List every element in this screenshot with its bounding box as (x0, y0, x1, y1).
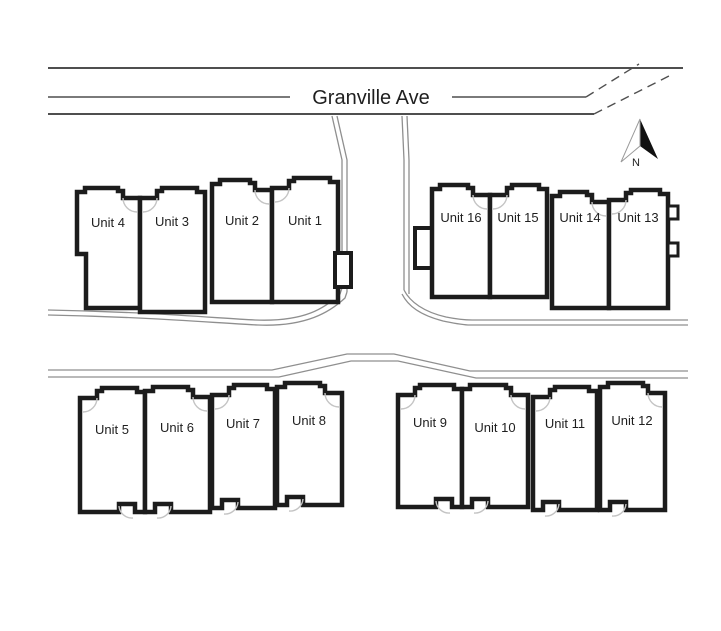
unit-2: Unit 2 (212, 180, 272, 302)
unit-13: Unit 13 (609, 190, 678, 308)
lower-lane-north-line (48, 354, 688, 371)
unit-4: Unit 4 (77, 188, 140, 308)
unit-6-outline (145, 387, 210, 512)
unit-9-outline (398, 385, 462, 507)
driveway-east-edge-inner (402, 116, 404, 290)
unit-14: Unit 14 (552, 192, 609, 308)
unit-5-outline (80, 388, 145, 512)
north-arrow-outline-icon (621, 119, 640, 162)
unit-13-label: Unit 13 (617, 210, 658, 225)
unit-7-label: Unit 7 (226, 416, 260, 431)
site-plan: Granville Ave Unit 4 Unit 3 Uni (0, 0, 721, 631)
north-arrow: N (621, 119, 658, 169)
unit-1-outline (272, 178, 338, 302)
unit-2-outline (212, 180, 272, 302)
unit-15-outline (490, 185, 547, 297)
north-west-block: Unit 4 Unit 3 Unit 2 Unit 1 (77, 178, 351, 312)
site-plan-drawing: Granville Ave Unit 4 Unit 3 Uni (0, 0, 721, 631)
unit-14-label: Unit 14 (559, 210, 600, 225)
street-name-label: Granville Ave (312, 87, 429, 109)
north-arrow-icon (640, 119, 658, 159)
unit-5-label: Unit 5 (95, 422, 129, 437)
north-label: N (632, 157, 640, 169)
south-east-block: Unit 9 Unit 10 Unit 11 Unit 12 (398, 383, 665, 516)
unit-1: Unit 1 (272, 178, 351, 302)
granville-ave-road: Granville Ave (48, 64, 683, 114)
road-south-edge-bend (594, 76, 669, 114)
unit-13-outline (609, 190, 668, 308)
unit-15: Unit 15 (490, 185, 547, 297)
unit-6: Unit 6 (145, 387, 210, 518)
unit-7: Unit 7 (212, 385, 275, 514)
driveway-east-edge (407, 116, 409, 294)
unit-3-label: Unit 3 (155, 214, 189, 229)
unit-11-label: Unit 11 (545, 416, 585, 431)
unit-11-outline (533, 387, 597, 510)
unit-15-label: Unit 15 (497, 210, 538, 225)
unit-5: Unit 5 (80, 388, 145, 518)
unit-12-label: Unit 12 (611, 413, 652, 428)
unit-12-outline (600, 383, 665, 510)
unit-16-outline (432, 185, 490, 297)
unit-13-side-tab-upper (668, 206, 678, 219)
unit-8-outline (277, 383, 342, 505)
unit-7-outline (212, 385, 275, 508)
unit-8: Unit 8 (277, 383, 342, 511)
unit-1-label: Unit 1 (288, 213, 322, 228)
unit-2-label: Unit 2 (225, 213, 259, 228)
unit-3-outline (140, 188, 205, 312)
unit-9: Unit 9 (398, 385, 462, 513)
north-east-block: Unit 16 Unit 15 Unit 14 Unit 13 (415, 185, 678, 308)
unit-13-side-tab-lower (668, 243, 678, 256)
unit-10-label: Unit 10 (474, 420, 515, 435)
unit-3: Unit 3 (140, 188, 205, 312)
unit-16-porch (415, 228, 432, 268)
rear-lane-lower (48, 354, 688, 378)
unit-12: Unit 12 (600, 383, 665, 516)
unit-10: Unit 10 (462, 385, 528, 513)
unit-16: Unit 16 (415, 185, 490, 297)
unit-4-outline (77, 188, 140, 308)
unit-16-label: Unit 16 (440, 210, 481, 225)
unit-9-label: Unit 9 (413, 415, 447, 430)
unit-1-porch (335, 253, 351, 287)
unit-6-label: Unit 6 (160, 420, 194, 435)
unit-10-outline (462, 385, 528, 507)
south-west-block: Unit 5 Unit 6 Unit 7 Unit 8 (80, 383, 342, 518)
unit-8-label: Unit 8 (292, 413, 326, 428)
unit-4-label: Unit 4 (91, 215, 125, 230)
unit-11: Unit 11 (533, 387, 597, 516)
